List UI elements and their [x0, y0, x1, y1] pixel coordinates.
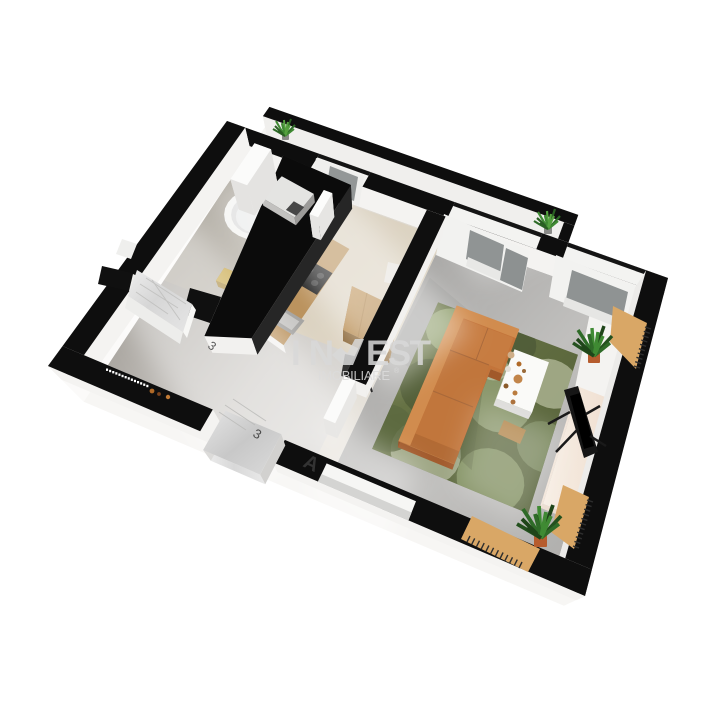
svg-text:®: ® [394, 367, 400, 375]
svg-text:IMOBILIARE: IMOBILIARE [318, 368, 392, 383]
